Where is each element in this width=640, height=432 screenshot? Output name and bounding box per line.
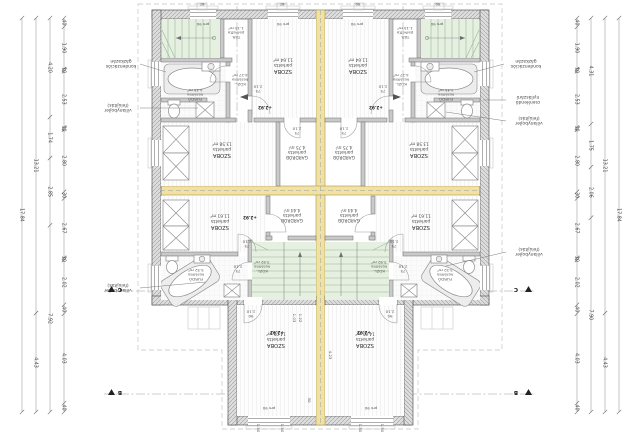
staircase-upper — [162, 19, 220, 58]
dim-label: 40 — [61, 19, 67, 25]
dim-label: 30 — [574, 192, 580, 198]
room-label-szoba-a-l: SZOBAparketta11.64 m² — [273, 57, 293, 75]
dim-label: 10 — [61, 67, 67, 73]
room-label-gardrob-a-r: GARDRÓBparketta4.75 m² — [333, 144, 355, 161]
dim-label: 2.53 — [61, 94, 67, 105]
dim-label: 10 — [61, 125, 67, 131]
dim-label: 17.84 — [19, 208, 25, 222]
inner-dim: 1.22 — [298, 314, 303, 323]
room-label-szoba-b-r: SZOBAparketta13.58 m² — [409, 141, 429, 159]
section-letter: C — [514, 286, 518, 292]
dim-label: 17.84 — [616, 208, 622, 222]
dim-label: 4.43 — [33, 357, 39, 368]
section-letter: C — [118, 286, 122, 292]
dim-label: 4.43 — [602, 357, 608, 368]
dim-label: 30 — [61, 192, 67, 198]
section-triangle-b-right — [525, 389, 532, 395]
dim-label: 1.90 — [574, 43, 580, 54]
dim-label: 7.92 — [47, 313, 53, 324]
room-label-szoba-c-r: SZOBAparketta11.61 m² — [411, 213, 431, 231]
dim-label: 40 — [61, 405, 67, 411]
level-mark: +2.92 — [369, 105, 383, 110]
dim-label: 2.85 — [47, 186, 53, 197]
annotation-bojler-left-lower: villanybojler(felújítás) — [104, 282, 132, 293]
dim-label: 10 — [574, 67, 580, 73]
inner-dim: 1.03 — [292, 314, 297, 323]
room-label-furdo-also-r: FÜRDŐkerámia5.52 m² — [437, 268, 453, 282]
room-label-kozl-fel-r: KÖZL.kerámia4.27 m² — [393, 73, 409, 87]
section-triangle-c-right — [525, 286, 532, 292]
inner-dim: 1.50 — [380, 424, 385, 432]
inner-dim: 4.23 — [328, 351, 333, 360]
dim-label: 1.74 — [47, 132, 53, 143]
dim-label: 7.90 — [588, 310, 594, 321]
room-label-tar-l: TÁR.parketta1.15 m² — [227, 26, 244, 40]
dim-label: 40 — [574, 306, 580, 312]
inner-dim: 1.50 — [280, 424, 285, 432]
section-letter: B — [514, 389, 518, 395]
dim-label: 40 — [61, 306, 67, 312]
door-size-label: 752.10 — [292, 127, 301, 136]
sill-label: pm 90 — [430, 22, 443, 27]
annotation-bojler-right-lower: villanybojler(felújítás) — [515, 246, 543, 257]
dim-label: 40 — [574, 405, 580, 411]
vent-label: 60 — [279, 2, 284, 7]
dim-label: 13.21 — [602, 159, 608, 173]
sill-label: pm 90 — [196, 22, 209, 27]
dim-label: 2.80 — [61, 155, 67, 166]
dim-label: 2.80 — [574, 155, 580, 166]
inner-dim: 30 — [307, 398, 312, 403]
inner-dim: 1.50 — [358, 424, 363, 432]
dim-label: 2.06 — [588, 187, 594, 198]
dim-label: 2.67 — [574, 223, 580, 234]
annotation-bojler-left: villanybojler(felújítás) — [104, 102, 132, 113]
dim-label: 40 — [574, 19, 580, 25]
dim-label: 10 — [61, 256, 67, 262]
level-mark: +2.92 — [258, 105, 272, 110]
room-label-tar-r: TÁR.parketta1.15 m² — [396, 26, 413, 40]
level-mark: +2.92 — [270, 330, 284, 335]
dim-label: 2.02 — [574, 277, 580, 288]
room-label-szoba-b-l: SZOBAparketta13.58 m² — [212, 141, 232, 159]
dim-label: 4.20 — [47, 62, 53, 73]
vent-label: 60 — [435, 2, 440, 7]
room-label-kozl-fel-l: KÖZL.kerámia4.27 m² — [232, 73, 248, 87]
sill-label: pm 90 — [350, 22, 363, 27]
room-label-furdo-also-l: FÜRDŐkerámia5.52 m² — [188, 268, 204, 282]
section-triangle-b-left — [108, 389, 115, 395]
dim-label: 4.31 — [588, 66, 594, 77]
vent-label: 60 — [199, 2, 204, 7]
dim-label: 1.90 — [61, 43, 67, 54]
floor-plan: SZOBAparketta11.64 m² TÁR.parketta1.15 m… — [0, 0, 640, 432]
door-size-label: 752.10 — [339, 127, 348, 136]
annotation-bojler-right: villanybojler(felújítás) — [515, 115, 543, 126]
room-label-furdo-fel-r: FÜRDŐkerámia4.45 m² — [438, 88, 454, 102]
dim-label: 1.75 — [588, 140, 594, 151]
vent-label: 60 — [355, 2, 360, 7]
sill-label: pm 90 — [364, 406, 377, 411]
exterior-landing — [188, 307, 220, 329]
annotation-boiler-left: kondenzációsgázkazán — [105, 58, 136, 70]
dim-label: 10 — [574, 256, 580, 262]
dim-label: 10 — [574, 125, 580, 131]
annotation-boiler-right: kondenzációsgázkazán — [510, 58, 541, 70]
inner-dim: 1.50 — [256, 424, 261, 432]
sill-label: pm 90 — [262, 406, 275, 411]
sill-label: pm 90 — [276, 22, 289, 27]
room-label-gardrob-b-l: GARDRÓBparketta4.44 m² — [281, 207, 303, 224]
dim-label: 13.21 — [33, 159, 39, 173]
dim-label: 2.67 — [61, 223, 67, 234]
room-label-gardrob-a-l: GARDRÓBparketta4.75 m² — [286, 144, 308, 161]
annotation-window-right: cserélendőnyílászáró — [515, 94, 540, 106]
level-mark: +2.92 — [357, 330, 371, 335]
room-label-szoba-a-r: SZOBAparketta11.64 m² — [348, 57, 368, 75]
level-mark: +2.92 — [243, 215, 257, 220]
section-letter: B — [118, 389, 122, 395]
dim-label: 2.02 — [61, 277, 67, 288]
dim-label: 4.03 — [61, 353, 67, 364]
room-label-szoba-c-l: SZOBAparketta11.61 m² — [210, 213, 230, 231]
dim-label: 2.53 — [574, 94, 580, 105]
room-label-furdo-fel-l: FÜRDŐkerámia4.45 m² — [187, 88, 203, 102]
room-label-gardrob-b-r: GARDRÓBparketta4.44 m² — [338, 207, 360, 224]
dim-label: 4.03 — [574, 353, 580, 364]
